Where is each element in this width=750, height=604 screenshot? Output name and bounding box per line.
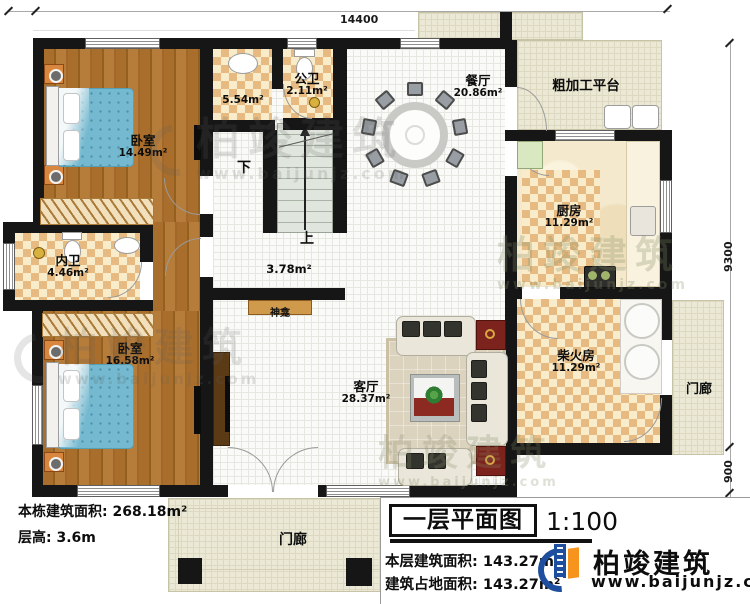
cutting-board xyxy=(630,206,656,236)
nightstand xyxy=(44,64,64,84)
fridge xyxy=(517,141,543,169)
bed-headboard xyxy=(46,362,59,448)
note-floor-height: 层高: 3.6m xyxy=(18,527,96,547)
plant xyxy=(424,385,444,405)
room-label-public-bath: 公卫 2.11m² xyxy=(286,72,327,98)
room-label-hall: 3.78m² xyxy=(266,263,311,276)
title-row1-label: 本层建筑面积: xyxy=(385,554,478,570)
pillow xyxy=(63,408,80,440)
sofa-pillow xyxy=(444,321,462,337)
room-label-dining: 餐厅 20.86m² xyxy=(454,74,503,100)
wall xyxy=(196,485,228,497)
sofa-pillow xyxy=(402,321,420,337)
wardrobe xyxy=(40,198,154,225)
floor-plan: 14400 9300 900 2000 xyxy=(0,0,750,604)
room-label-porch-right: 门廊 xyxy=(686,383,712,398)
stove-burner xyxy=(588,271,597,280)
nightstand xyxy=(44,340,64,360)
room-label-wash: 5.54m² xyxy=(222,95,263,107)
wall xyxy=(263,130,277,233)
wall xyxy=(272,49,283,89)
note-total-value: 268.18m² xyxy=(112,504,187,520)
note-total-area: 本栋建筑面积: 268.18m² xyxy=(18,501,187,521)
window xyxy=(555,130,615,141)
sofa-pillow xyxy=(471,382,487,400)
note-height-label: 层高: xyxy=(18,530,52,546)
room-label-living: 客厅 28.37m² xyxy=(342,380,391,406)
tv-bedroom1 xyxy=(194,125,201,160)
title-row2-label: 建筑占地面积: xyxy=(385,577,478,593)
drawing-scale: 1:100 xyxy=(546,507,618,536)
drawing-title-box: 一层平面图 xyxy=(389,504,537,537)
title-block: 一层平面图 1:100 本层建筑面积: 143.27m² 建筑占地面积: 143… xyxy=(380,497,750,604)
window xyxy=(77,485,160,497)
side-table-ring xyxy=(485,329,495,339)
window xyxy=(326,485,410,497)
dining-chair xyxy=(407,82,423,96)
brand-logo-tower-orange xyxy=(568,547,579,579)
wall xyxy=(505,130,555,141)
sofa-pillow xyxy=(428,453,446,469)
wall xyxy=(505,40,517,87)
pillow xyxy=(63,130,80,161)
stove-burner xyxy=(601,271,610,280)
room-label-inner-bath: 内卫 4.46m² xyxy=(47,254,88,280)
pillow xyxy=(63,93,80,124)
stairs-down-label: 下 xyxy=(237,161,251,177)
wall xyxy=(160,38,287,49)
pillow xyxy=(63,370,80,402)
dimension-top: 14400 xyxy=(340,13,378,26)
window xyxy=(32,385,43,445)
porch-column xyxy=(178,558,202,584)
wok-stove xyxy=(624,303,660,339)
bed-headboard xyxy=(46,86,59,166)
wok-stove xyxy=(624,344,660,380)
dining-chair xyxy=(361,118,378,136)
wall xyxy=(200,277,213,497)
wall xyxy=(3,300,153,311)
wall xyxy=(200,214,213,237)
brand-url: www.baijunjz.com xyxy=(591,572,750,591)
wall xyxy=(560,287,662,299)
tv-living xyxy=(225,376,230,432)
note-height-value: 3.6m xyxy=(56,530,95,546)
eaves-line xyxy=(33,30,415,31)
wall xyxy=(440,38,505,49)
wall xyxy=(317,38,400,49)
brand-url-text: www.baijunjz.com xyxy=(591,572,750,591)
wall xyxy=(318,485,326,497)
window xyxy=(3,243,15,290)
window xyxy=(85,38,160,49)
wall xyxy=(501,443,672,455)
wall xyxy=(333,38,347,233)
wall xyxy=(213,288,345,300)
dining-chair xyxy=(452,118,469,136)
platform-sink xyxy=(604,105,631,129)
room-label-platform: 粗加工平台 xyxy=(552,79,620,94)
wall xyxy=(283,118,333,130)
nightstand xyxy=(44,452,64,472)
room-label-bedroom2: 卧室 16.58m² xyxy=(106,342,155,368)
drawing-scale-value: 1:100 xyxy=(546,507,618,536)
brand-logo-tower-blue xyxy=(554,544,566,578)
room-label-firewood: 柴火房 11.29m² xyxy=(552,349,601,375)
window xyxy=(287,38,317,49)
window xyxy=(400,38,440,49)
sofa-pillow xyxy=(471,360,487,378)
stairs-up-label: 上 xyxy=(300,232,314,248)
sofa-pillow xyxy=(423,321,441,337)
wall xyxy=(33,38,44,222)
window xyxy=(660,180,672,233)
wall xyxy=(32,485,77,497)
toilet-tank xyxy=(62,232,82,240)
drawing-title: 一层平面图 xyxy=(403,507,523,533)
dimension-right: 9300 xyxy=(722,241,735,272)
porch-right-floor xyxy=(672,300,724,455)
note-total-label: 本栋建筑面积: xyxy=(18,504,108,520)
sofa-pillow xyxy=(471,404,487,422)
wall xyxy=(140,233,153,262)
porch-column xyxy=(346,558,372,586)
room-label-bedroom1: 卧室 14.49m² xyxy=(119,134,168,160)
room-label-porch-bottom: 门廊 xyxy=(279,533,307,549)
wall xyxy=(200,49,213,176)
sink xyxy=(114,237,140,254)
brand-logo xyxy=(537,540,589,596)
wall xyxy=(615,130,662,141)
sofa-pillow xyxy=(406,453,424,469)
shrine-box: 神龛 xyxy=(248,300,312,315)
wardrobe xyxy=(42,313,154,337)
floor-drain xyxy=(309,97,320,108)
shower-knob xyxy=(33,247,45,259)
nightstand xyxy=(44,165,64,185)
tv-bedroom2 xyxy=(194,386,201,434)
side-table-ring xyxy=(485,455,495,465)
toilet-tank xyxy=(294,49,315,57)
title-row1: 本层建筑面积: 143.27m² xyxy=(385,550,560,571)
stair-arrow-line xyxy=(304,135,306,230)
room-label-kitchen: 厨房 11.29m² xyxy=(545,204,594,230)
shrine-label: 神龛 xyxy=(270,308,290,319)
wall xyxy=(410,485,505,497)
sink xyxy=(228,53,258,74)
wall xyxy=(660,130,672,180)
wall xyxy=(505,287,522,299)
title-row2: 建筑占地面积: 143.27m² xyxy=(385,573,560,594)
platform-sink xyxy=(632,105,659,129)
dining-table-center xyxy=(405,125,425,145)
dimension-right-step: 900 xyxy=(722,460,735,483)
dimension-tick xyxy=(663,4,672,13)
wall xyxy=(500,12,512,40)
